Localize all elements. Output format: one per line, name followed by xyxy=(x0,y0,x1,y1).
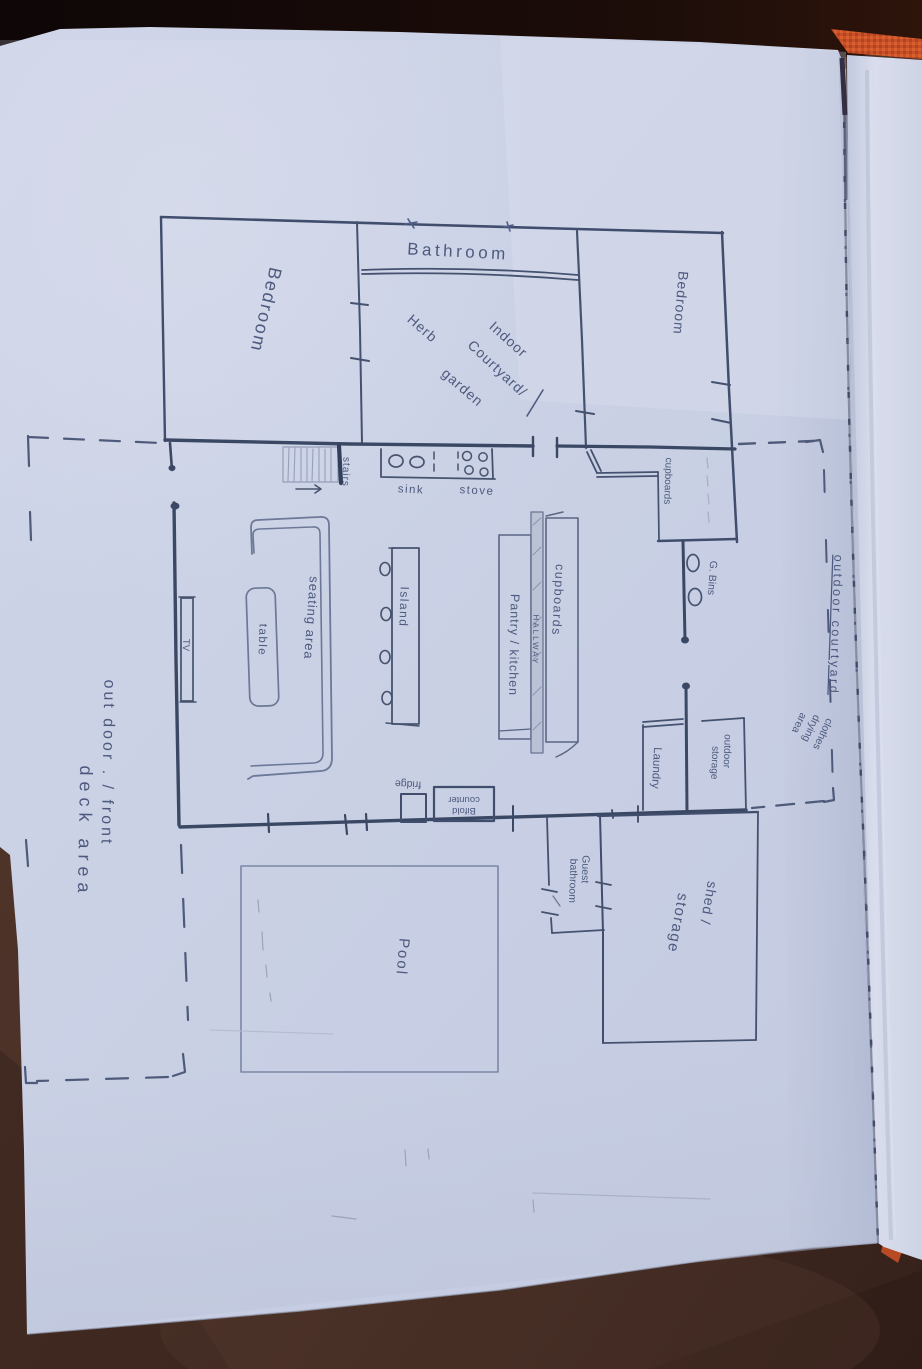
svg-text:cupboards: cupboards xyxy=(661,457,674,504)
svg-text:bathroom: bathroom xyxy=(566,858,580,903)
svg-text:counter: counter xyxy=(448,794,480,805)
svg-text:Guest: Guest xyxy=(579,855,592,883)
svg-text:Bifold: Bifold xyxy=(452,805,476,816)
svg-text:stairs: stairs xyxy=(339,457,351,487)
svg-text:TV: TV xyxy=(180,639,191,652)
svg-text:sink: sink xyxy=(397,483,424,496)
svg-text:outdoor: outdoor xyxy=(721,734,733,769)
svg-text:table: table xyxy=(255,624,268,657)
svg-text:Island: Island xyxy=(396,586,411,627)
svg-text:storage: storage xyxy=(708,746,720,780)
svg-text:HALLWAY: HALLWAY xyxy=(531,615,541,666)
svg-text:stove: stove xyxy=(459,484,495,498)
svg-text:out door . / front: out door . / front xyxy=(98,679,118,846)
svg-text:G. Bins: G. Bins xyxy=(705,560,719,595)
svg-text:fridge: fridge xyxy=(394,777,421,790)
svg-text:deck area: deck area xyxy=(74,765,96,898)
svg-text:Pool: Pool xyxy=(392,937,412,976)
svg-text:Laundry: Laundry xyxy=(649,747,663,789)
svg-text:Pantry / kitchen: Pantry / kitchen xyxy=(506,594,522,696)
